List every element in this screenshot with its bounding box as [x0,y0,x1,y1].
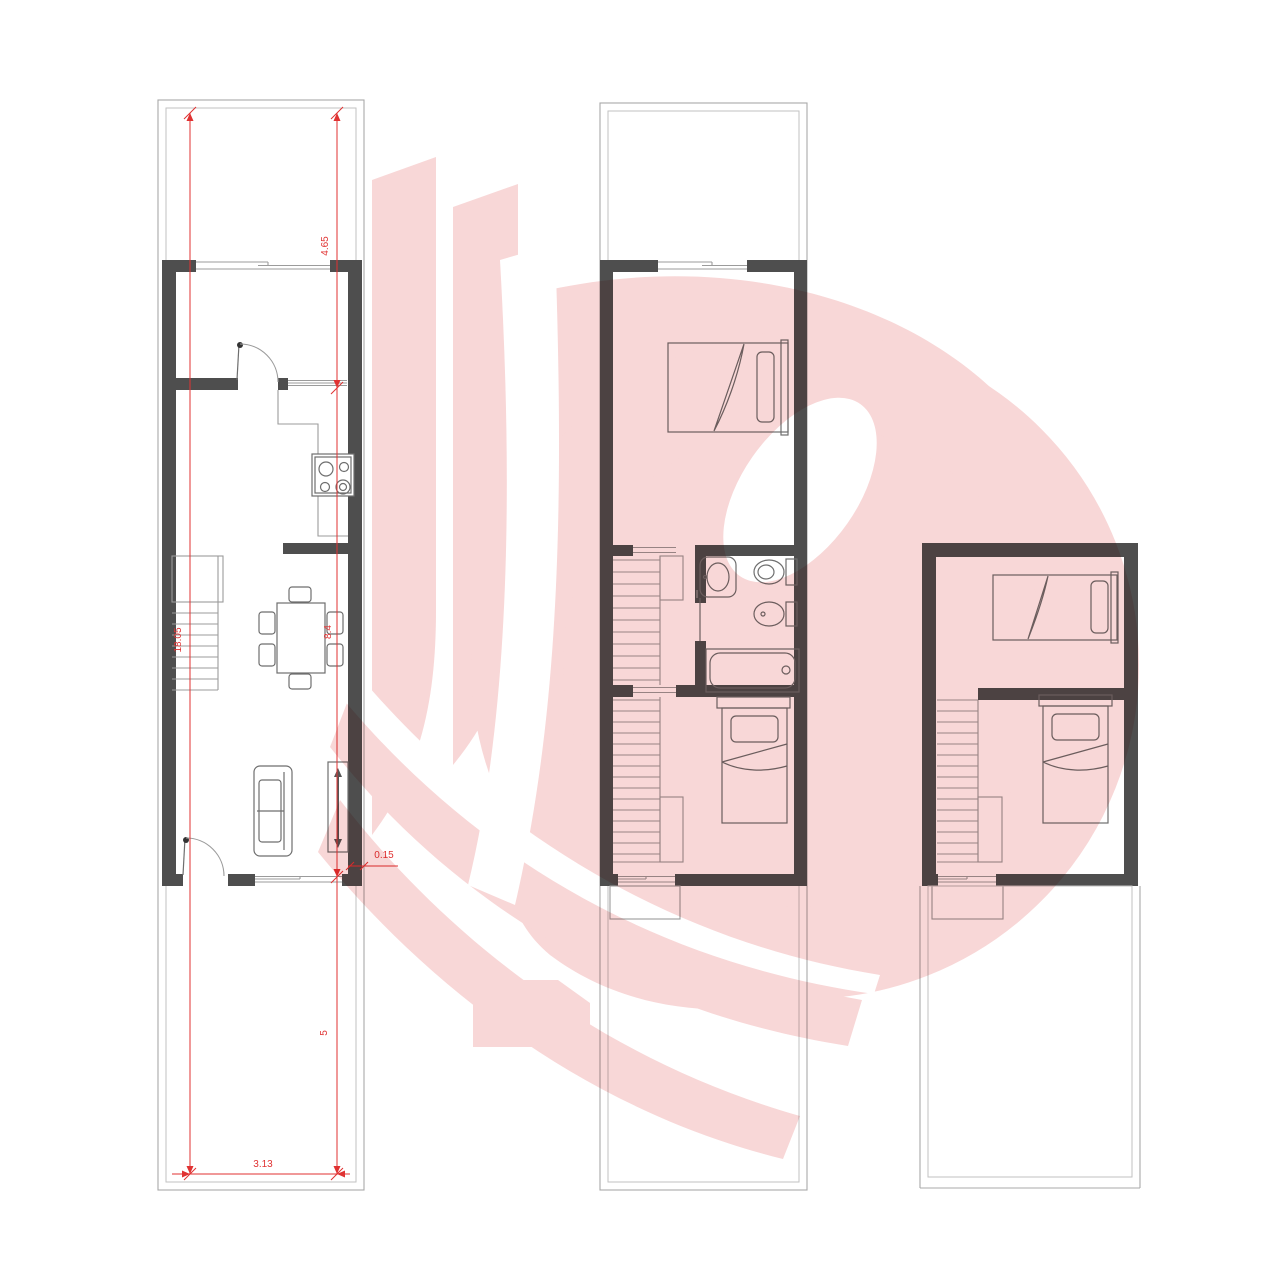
sideboard [328,762,348,852]
stair-rail-lower [633,688,676,693]
yard-outline [920,886,1140,1188]
sofa [254,766,292,856]
rear-door [618,877,675,883]
interior-door [237,342,278,382]
stairs [613,556,683,862]
second-floor-plan [920,543,1140,1188]
entry-step [610,886,680,919]
first-floor-plan [600,103,807,1190]
walls [600,260,807,886]
stairs [172,556,223,690]
sliding-window-top [196,262,330,269]
entry-door [183,837,224,876]
dim-label-front-setback: 4.65 [320,236,331,256]
toilet [754,559,797,585]
bathroom [697,557,799,692]
entry-step [932,886,1003,919]
double-bed [668,340,788,435]
dim-label-total-depth: 18.05 [173,627,184,652]
dim-label-rear-yard: 5 [319,1030,330,1036]
stairs [937,700,1002,862]
sliding-window-top [658,262,747,269]
floor-plan-sheet: 4.65 8.4 5 18.05 3.13 0.15 [0,0,1280,1280]
dim-label-house-depth: 8.4 [323,625,334,639]
single-bed-vertical [1039,695,1112,823]
dim-label-interior-width: 3.13 [253,1159,273,1170]
stair-rail-upper [633,548,676,553]
single-bed-horizontal [993,572,1118,643]
rear-door [938,877,996,883]
window-living [255,877,342,883]
plans-drawing: 4.65 8.4 5 18.05 3.13 0.15 [0,0,1280,1280]
ground-floor-plan: 4.65 8.4 5 18.05 3.13 0.15 [158,100,398,1190]
bidet [754,602,797,626]
walls [162,260,362,886]
walls [922,543,1138,886]
single-bed [717,697,790,823]
stove [312,454,354,496]
dim-label-wall-thickness: 0.15 [374,850,394,861]
